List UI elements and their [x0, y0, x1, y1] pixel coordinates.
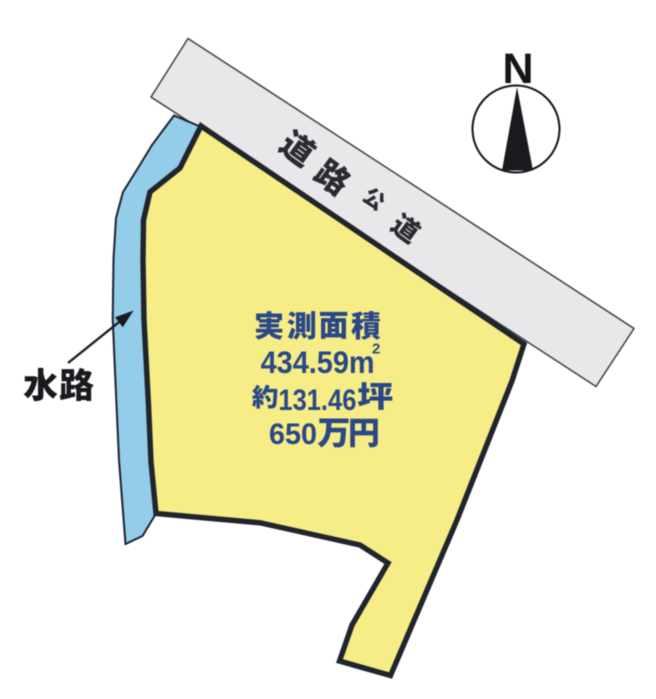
- svg-text:650: 650: [269, 418, 317, 451]
- svg-text:2: 2: [372, 341, 380, 358]
- svg-text:434.59m: 434.59m: [261, 344, 375, 380]
- svg-text:131.46: 131.46: [278, 384, 356, 417]
- svg-text:N: N: [502, 45, 533, 93]
